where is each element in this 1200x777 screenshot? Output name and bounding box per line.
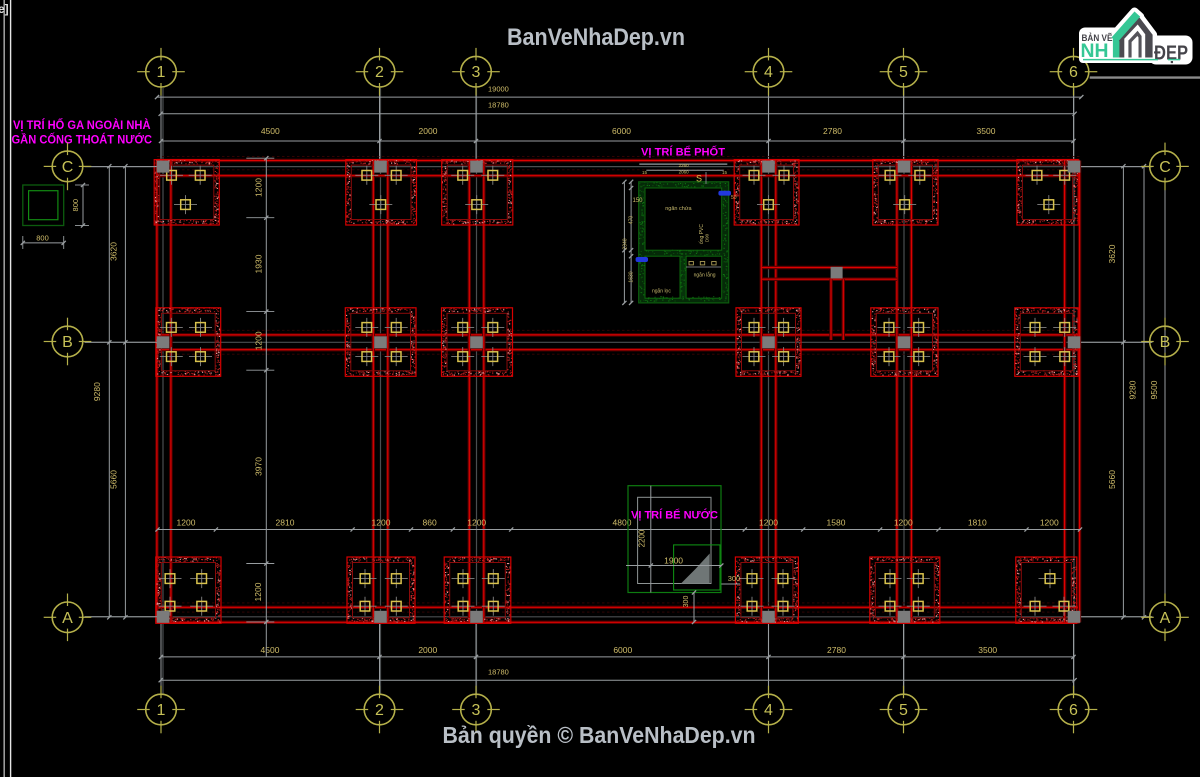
svg-text:D90: D90: [705, 233, 710, 242]
svg-text:15: 15: [642, 170, 648, 175]
svg-text:4: 4: [764, 702, 773, 719]
svg-text:1200: 1200: [759, 518, 778, 528]
svg-text:18780: 18780: [488, 668, 509, 677]
svg-text:4: 4: [764, 64, 773, 81]
svg-text:470: 470: [629, 216, 635, 225]
svg-text:800: 800: [36, 234, 49, 243]
svg-text:2000: 2000: [418, 645, 437, 655]
svg-text:B: B: [62, 334, 73, 351]
svg-text:5660: 5660: [1107, 470, 1117, 489]
svg-text:15: 15: [722, 170, 728, 175]
svg-text:1200: 1200: [254, 178, 264, 197]
svg-text:6: 6: [1069, 64, 1078, 81]
svg-text:C: C: [1159, 159, 1171, 176]
svg-text:9280: 9280: [1128, 380, 1138, 399]
svg-text:1930: 1930: [254, 254, 264, 273]
svg-text:4500: 4500: [261, 126, 280, 136]
svg-text:1200: 1200: [253, 582, 263, 601]
svg-text:1200: 1200: [1040, 518, 1059, 528]
svg-text:1200: 1200: [372, 518, 391, 528]
svg-text:ngăn lắng: ngăn lắng: [694, 272, 716, 279]
svg-text:6000: 6000: [613, 645, 632, 655]
svg-text:1810: 1810: [968, 518, 987, 528]
svg-text:800: 800: [71, 199, 80, 212]
svg-text:A: A: [62, 610, 73, 627]
svg-text:1: 1: [157, 702, 166, 719]
svg-text:A: A: [1160, 610, 1171, 627]
svg-text:150: 150: [633, 198, 644, 204]
svg-text:3: 3: [472, 702, 481, 719]
svg-text:18780: 18780: [488, 101, 509, 110]
svg-text:6000: 6000: [612, 126, 631, 136]
svg-text:2340: 2340: [622, 238, 628, 249]
svg-text:1200: 1200: [467, 518, 486, 528]
svg-text:300: 300: [683, 596, 690, 608]
svg-text:6: 6: [1069, 702, 1078, 719]
svg-text:3500: 3500: [977, 126, 996, 136]
svg-text:1900: 1900: [664, 556, 683, 566]
svg-text:VỊ TRÍ HỐ GA NGOÀI NHÀ: VỊ TRÍ HỐ GA NGOÀI NHÀ: [13, 118, 151, 132]
svg-text:VỊ TRÍ BỂ PHỐT: VỊ TRÍ BỂ PHỐT: [641, 145, 725, 159]
svg-text:860: 860: [423, 518, 437, 528]
svg-text:C: C: [62, 159, 74, 176]
svg-text:2780: 2780: [827, 645, 846, 655]
svg-text:9280: 9280: [92, 382, 102, 401]
svg-text:1200: 1200: [894, 518, 913, 528]
svg-text:2810: 2810: [276, 518, 295, 528]
svg-text:2260: 2260: [679, 163, 690, 168]
svg-text:1200: 1200: [254, 331, 264, 350]
svg-text:3500: 3500: [978, 645, 997, 655]
svg-text:3970: 3970: [254, 457, 264, 476]
svg-text:9500: 9500: [1149, 380, 1159, 399]
svg-text:2060: 2060: [679, 170, 690, 175]
svg-text:19000: 19000: [488, 85, 509, 94]
svg-text:5: 5: [899, 702, 908, 719]
svg-text:1: 1: [157, 64, 166, 81]
svg-text:4800: 4800: [613, 518, 632, 528]
svg-text:50: 50: [731, 195, 737, 201]
svg-text:1630: 1630: [629, 271, 635, 282]
svg-text:B: B: [1160, 334, 1171, 351]
svg-text:300: 300: [728, 574, 741, 583]
svg-text:ĐẸP: ĐẸP: [1154, 42, 1188, 65]
svg-text:VỊ TRÍ BỂ NƯỚC: VỊ TRÍ BỂ NƯỚC: [631, 509, 718, 522]
svg-text:2000: 2000: [419, 126, 438, 136]
svg-text:S: S: [696, 174, 702, 184]
svg-text:GẦN CỐNG THOÁT NƯỚC: GẦN CỐNG THOÁT NƯỚC: [12, 133, 153, 147]
svg-text:3620: 3620: [1107, 244, 1117, 263]
svg-text:BanVeNhaDep.vn: BanVeNhaDep.vn: [507, 24, 685, 51]
svg-text:4500: 4500: [261, 645, 280, 655]
svg-text:e]: e]: [0, 2, 9, 16]
svg-text:2: 2: [375, 702, 384, 719]
svg-text:2200: 2200: [638, 529, 647, 547]
svg-text:ngăn chứa: ngăn chứa: [665, 206, 692, 212]
svg-text:2: 2: [375, 64, 384, 81]
svg-text:5: 5: [899, 64, 908, 81]
svg-text:5660: 5660: [109, 470, 119, 489]
svg-text:Bản quyền © BanVeNhaDep.vn: Bản quyền © BanVeNhaDep.vn: [443, 722, 756, 748]
svg-text:1580: 1580: [827, 518, 846, 528]
svg-text:2780: 2780: [823, 126, 842, 136]
svg-text:3: 3: [472, 64, 481, 81]
svg-text:ngăn lọc: ngăn lọc: [652, 289, 671, 295]
svg-text:3620: 3620: [109, 242, 119, 261]
svg-text:1200: 1200: [177, 518, 196, 528]
